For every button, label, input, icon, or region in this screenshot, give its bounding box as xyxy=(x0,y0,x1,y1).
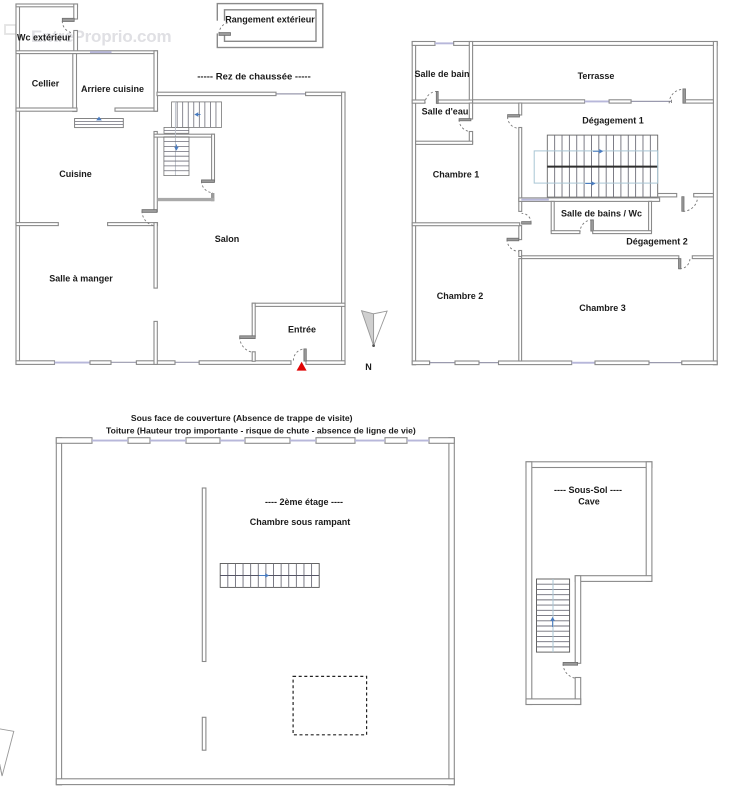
svg-text:---- Sous-Sol ----: ---- Sous-Sol ---- xyxy=(554,485,622,495)
svg-text:Salle à manger: Salle à manger xyxy=(49,274,113,284)
svg-text:Arriere cuisine: Arriere cuisine xyxy=(81,84,144,94)
svg-text:Salle de bain: Salle de bain xyxy=(414,69,469,79)
svg-text:---- 2ème étage ----: ---- 2ème étage ---- xyxy=(265,497,343,507)
svg-text:Toiture (Hauteur trop importan: Toiture (Hauteur trop importante - risqu… xyxy=(106,426,416,436)
svg-text:Cuisine: Cuisine xyxy=(59,169,92,179)
svg-text:Dégagement 1: Dégagement 1 xyxy=(582,116,644,126)
svg-text:Cave: Cave xyxy=(578,497,600,507)
svg-text:Salle de bains / Wc: Salle de bains / Wc xyxy=(561,209,642,219)
svg-text:Cellier: Cellier xyxy=(32,79,60,89)
svg-text:----- Rez de chaussée -----: ----- Rez de chaussée ----- xyxy=(197,72,310,83)
svg-text:Chambre 2: Chambre 2 xyxy=(437,291,484,301)
svg-text:Sous face de couverture (Absen: Sous face de couverture (Absence de trap… xyxy=(131,413,353,423)
svg-text:Wc extérieur: Wc extérieur xyxy=(17,32,72,42)
svg-text:Rangement extérieur: Rangement extérieur xyxy=(225,14,315,24)
svg-text:Terrasse: Terrasse xyxy=(578,71,615,81)
svg-text:N: N xyxy=(365,362,372,372)
svg-text:Dégagement 2: Dégagement 2 xyxy=(626,237,688,247)
svg-text:Salle d'eau: Salle d'eau xyxy=(422,107,469,117)
svg-text:Entrée: Entrée xyxy=(288,325,316,335)
svg-text:Chambre sous rampant: Chambre sous rampant xyxy=(250,517,351,527)
svg-text:Chambre 3: Chambre 3 xyxy=(579,303,626,313)
svg-text:Salon: Salon xyxy=(215,234,240,244)
svg-text:Chambre 1: Chambre 1 xyxy=(433,170,480,180)
